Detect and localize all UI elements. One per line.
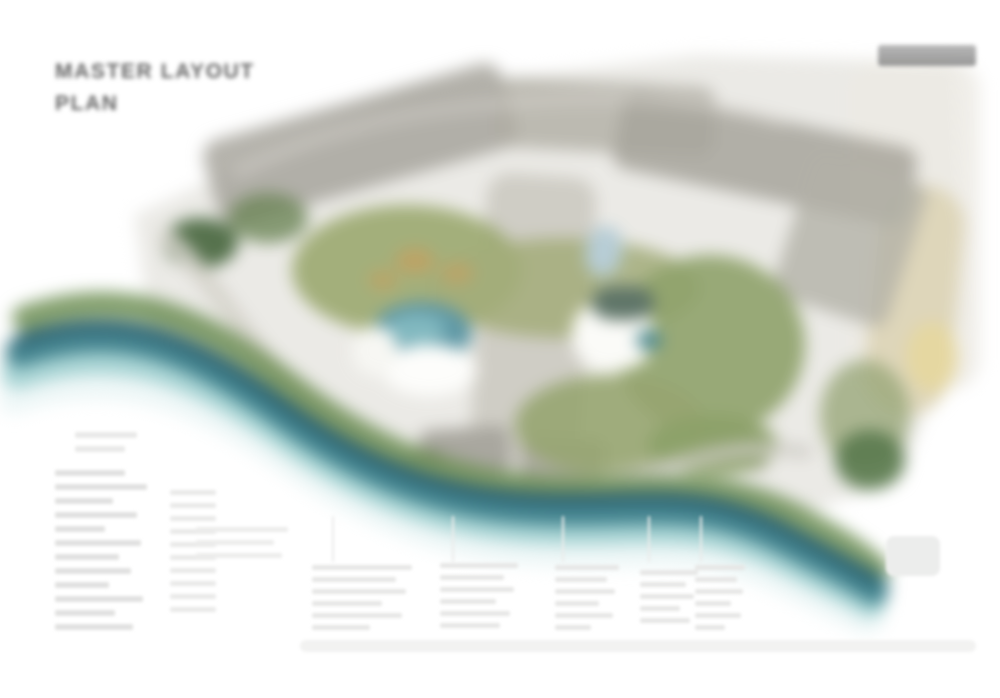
legend-text-line [648, 516, 650, 562]
legend-text-line [555, 625, 591, 630]
legend-text-line [196, 527, 288, 532]
legend-text-line [312, 625, 370, 630]
legend-text-line [170, 516, 216, 521]
legend-text-line [332, 516, 334, 562]
legend-text-line [55, 512, 137, 518]
legend-text-line [300, 640, 976, 652]
legend-text-line [440, 611, 510, 616]
legend-text-line [555, 589, 615, 594]
legend-text-line [640, 570, 698, 575]
legend-text-line [312, 577, 396, 582]
legend-text-line [440, 587, 514, 592]
legend-text-line [440, 623, 500, 628]
legend-text-line [452, 516, 454, 562]
legend-text-line [170, 594, 216, 599]
legend-text-line [440, 563, 518, 568]
legend-text-line [700, 516, 702, 562]
legend-text-line [640, 618, 690, 623]
master-plan-page: MASTER LAYOUTPLAN [0, 0, 1000, 698]
brand-logo-icon [878, 45, 976, 66]
legend-text-line [555, 565, 619, 570]
legend-text-line [75, 432, 137, 438]
legend-text-line [55, 596, 143, 602]
legend-text-line [55, 540, 141, 546]
legend-text-line [695, 601, 731, 606]
legend-text-line [55, 610, 115, 616]
legend-text-line [55, 484, 147, 490]
legend-text-line [640, 594, 694, 599]
legend-text-line [55, 526, 105, 532]
legend-text-line [640, 582, 686, 587]
legend-text-line [170, 568, 216, 573]
legend-text-line [640, 606, 680, 611]
legend-text-line [55, 498, 113, 504]
legend-text-line [55, 582, 109, 588]
legend-text-line [170, 503, 216, 508]
legend-text-line [555, 601, 599, 606]
legend-text-line [312, 613, 402, 618]
page-title-line1: MASTER LAYOUT [55, 60, 255, 83]
legend-text-line [196, 540, 274, 545]
legend-text-line [55, 624, 133, 630]
legend-text-line [440, 599, 496, 604]
legend-text-line [170, 607, 216, 612]
legend-text-line [440, 575, 504, 580]
legend-text-line [555, 613, 613, 618]
legend-text-line [695, 625, 725, 630]
page-title-line2: PLAN [55, 92, 119, 115]
legend-text-line [562, 516, 564, 562]
legend-text-line [695, 613, 741, 618]
legend-text-line [695, 565, 745, 570]
legend-text-line [555, 577, 607, 582]
legend-text-line [886, 536, 940, 576]
legend-text-line [170, 581, 216, 586]
legend-text-line [312, 601, 382, 606]
legend-text-line [695, 589, 743, 594]
legend-text-line [55, 470, 125, 476]
legend-text-line [196, 553, 282, 558]
legend-text-line [312, 565, 412, 570]
legend-text-line [75, 446, 125, 452]
legend-text-line [170, 490, 216, 495]
legend-text-line [312, 589, 406, 594]
legend-text-line [695, 577, 737, 582]
legend-text-line [55, 568, 131, 574]
page-title: MASTER LAYOUTPLAN [55, 56, 255, 119]
legend-text-line [55, 554, 119, 560]
